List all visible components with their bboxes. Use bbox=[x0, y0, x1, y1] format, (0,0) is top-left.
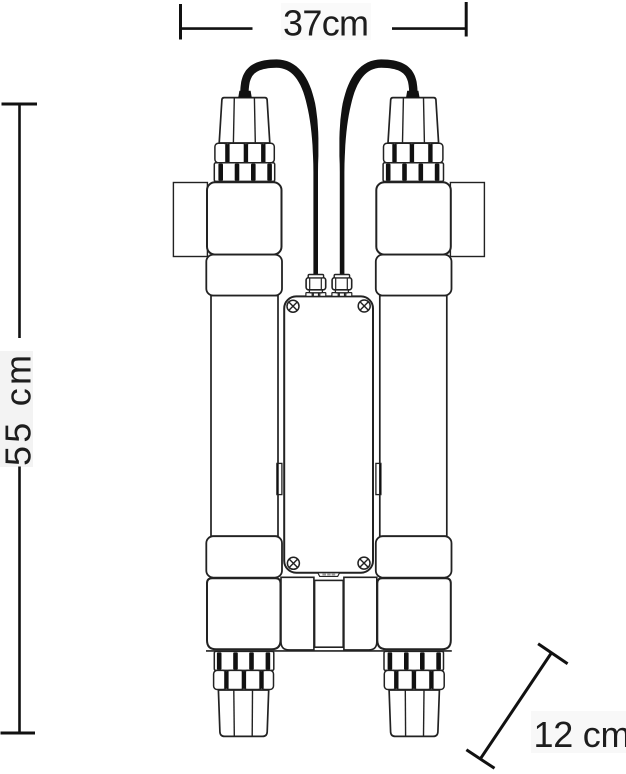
svg-text:55 cm: 55 cm bbox=[0, 355, 39, 466]
svg-text:37cm: 37cm bbox=[283, 3, 369, 44]
svg-text:12 cm: 12 cm bbox=[534, 714, 626, 755]
